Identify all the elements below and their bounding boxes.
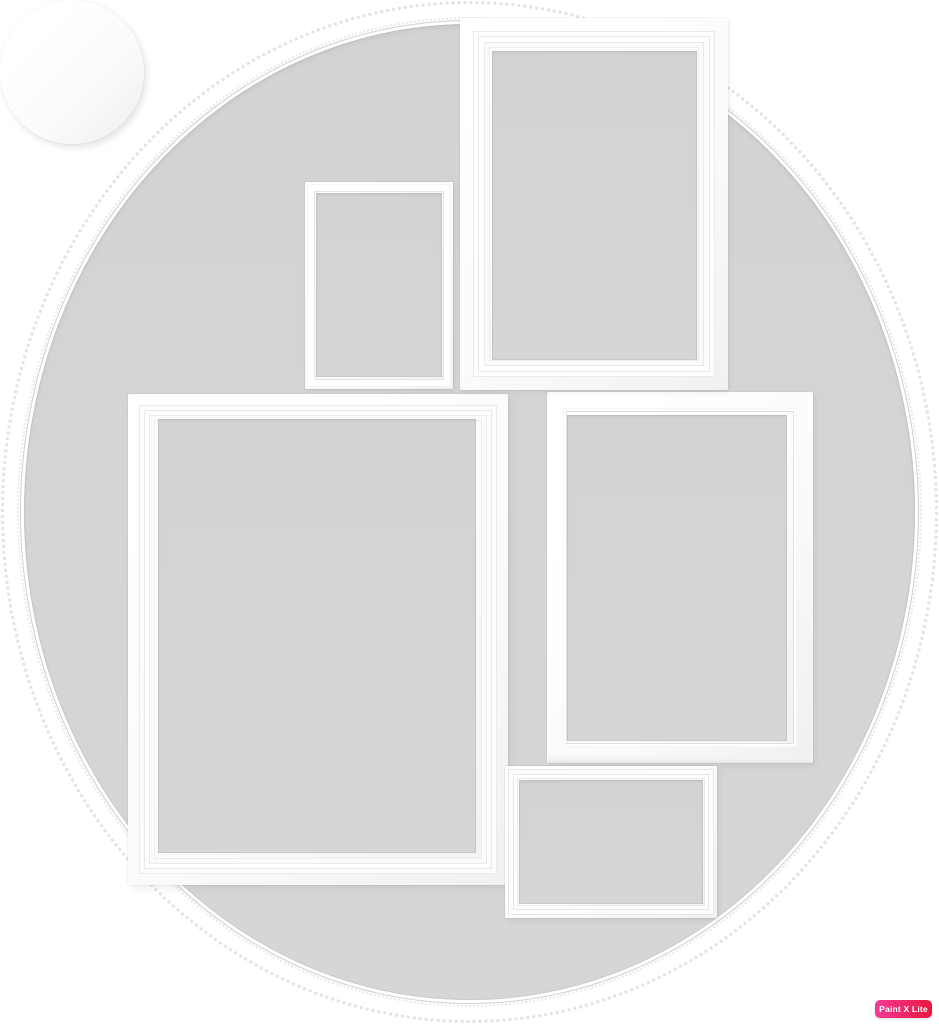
frame-opening (492, 51, 697, 360)
frame-opening (158, 419, 476, 853)
frame-opening (567, 415, 787, 741)
paint-x-lite-watermark-badge: Paint X Lite (875, 1000, 932, 1018)
picture-frame-round-left (0, 0, 144, 144)
frame-collage-photo: Paint X Lite (0, 0, 939, 1024)
frame-opening (519, 780, 703, 904)
frame-opening (316, 193, 442, 377)
picture-frame-portrait-small-upper-middle (305, 182, 453, 389)
picture-frame-landscape-small-bottom (505, 766, 717, 918)
picture-frame-portrait-medium-right (547, 392, 813, 763)
picture-frame-portrait-xlarge-lower-left (128, 394, 508, 885)
watermark-label: Paint X Lite (879, 1005, 928, 1014)
picture-frame-portrait-large-top-right (460, 18, 728, 390)
